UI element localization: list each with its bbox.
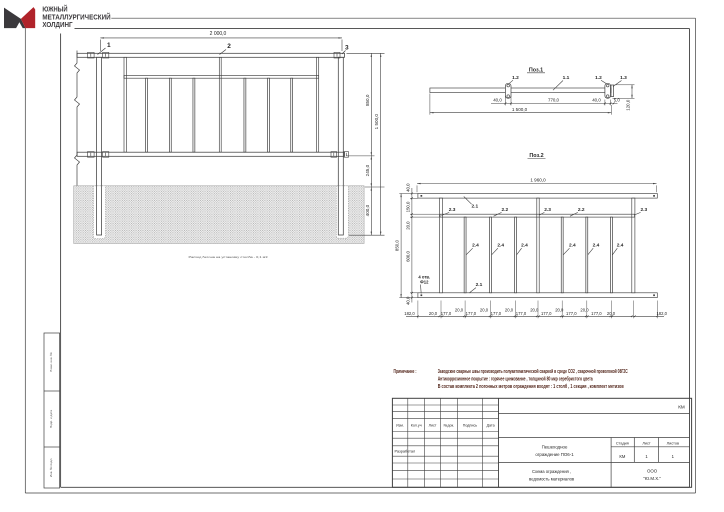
svg-text:Подп. и дата: Подп. и дата — [49, 410, 53, 429]
svg-text:Пешеходное: Пешеходное — [542, 445, 568, 450]
svg-text:20,0: 20,0 — [555, 307, 564, 312]
svg-text:Инв. № подл.: Инв. № подл. — [49, 458, 53, 477]
svg-text:2.3: 2.3 — [449, 207, 456, 213]
svg-text:177,0: 177,0 — [566, 311, 577, 316]
svg-text:1.3: 1.3 — [620, 75, 627, 81]
svg-text:В состав комплекта 2 погонных: В состав комплекта 2 погонных метров огр… — [438, 383, 624, 390]
svg-text:2 000,0: 2 000,0 — [210, 31, 227, 37]
svg-text:ограждение ПО6-1: ограждение ПО6-1 — [535, 452, 574, 457]
svg-text:600,0: 600,0 — [405, 251, 410, 262]
svg-text:КМ: КМ — [619, 454, 625, 459]
svg-text:245,0: 245,0 — [365, 164, 370, 176]
svg-text:2.3: 2.3 — [640, 207, 647, 213]
svg-text:Примечание :: Примечание : — [394, 369, 417, 375]
svg-text:ведомость материалов: ведомость материалов — [529, 477, 575, 482]
svg-text:2.2: 2.2 — [578, 207, 585, 213]
svg-text:40,0: 40,0 — [405, 183, 410, 192]
svg-text:КМ: КМ — [678, 405, 685, 410]
svg-text:Схема ограждения ,: Схема ограждения , — [532, 469, 571, 474]
svg-text:177,0: 177,0 — [441, 311, 452, 316]
svg-text:2.4: 2.4 — [521, 243, 528, 249]
svg-text:Дата: Дата — [487, 424, 495, 428]
svg-text:2.3: 2.3 — [544, 207, 551, 213]
svg-text:Стадия: Стадия — [616, 442, 629, 446]
svg-text:2.4: 2.4 — [472, 243, 479, 249]
svg-text:20,0: 20,0 — [607, 311, 616, 316]
svg-text:Антикоррозионное покрытие : го: Антикоррозионное покрытие : горячее цинк… — [438, 376, 593, 383]
svg-text:20,0: 20,0 — [405, 221, 410, 230]
svg-text:20,0: 20,0 — [530, 307, 539, 312]
svg-text:400,0: 400,0 — [365, 204, 370, 216]
svg-text:150,0: 150,0 — [405, 201, 410, 212]
svg-text:Подпись: Подпись — [463, 424, 477, 428]
svg-text:ХОЛДИНГ: ХОЛДИНГ — [42, 22, 72, 30]
svg-text:Лист: Лист — [429, 424, 437, 428]
svg-text:1.1: 1.1 — [563, 75, 570, 81]
svg-text:20,0: 20,0 — [580, 307, 589, 312]
svg-text:850,0: 850,0 — [395, 240, 400, 252]
svg-text:Разработал: Разработал — [395, 449, 416, 453]
svg-text:120,0: 120,0 — [626, 99, 631, 111]
svg-text:2.1: 2.1 — [471, 204, 478, 210]
svg-text:850,0: 850,0 — [365, 94, 370, 106]
svg-text:Взам. инв. №: Взам. инв. № — [49, 352, 53, 372]
svg-text:40,0: 40,0 — [592, 98, 601, 103]
svg-text:2.4: 2.4 — [593, 243, 600, 249]
svg-text:2.4: 2.4 — [569, 243, 576, 249]
svg-text:177,0: 177,0 — [491, 311, 502, 316]
svg-text:Расход бетона на установку сто: Расход бетона на установку столба - 0,1 … — [189, 255, 268, 259]
svg-text:1: 1 — [107, 42, 111, 49]
svg-text:Изм.: Изм. — [396, 424, 404, 428]
svg-text:ЮЖНЫЙ: ЮЖНЫЙ — [42, 4, 67, 14]
svg-text:Ф12: Ф12 — [420, 279, 429, 284]
svg-text:Кол.уч: Кол.уч — [411, 424, 422, 428]
svg-text:1 500,0: 1 500,0 — [374, 114, 379, 130]
svg-text:"Ю.М.Х.": "Ю.М.Х." — [643, 476, 661, 481]
svg-text:2.2: 2.2 — [501, 207, 508, 213]
svg-text:Листов: Листов — [667, 442, 679, 446]
svg-text:2.4: 2.4 — [617, 243, 624, 249]
svg-text:МЕТАЛЛУРГИЧЕСКИЙ: МЕТАЛЛУРГИЧЕСКИЙ — [42, 12, 110, 22]
svg-text:177,0: 177,0 — [591, 311, 602, 316]
svg-text:2: 2 — [227, 43, 231, 50]
svg-text:182,0: 182,0 — [656, 311, 667, 316]
svg-text:2.4: 2.4 — [497, 243, 504, 249]
svg-text:1 960,0: 1 960,0 — [530, 178, 546, 183]
svg-text:20,0: 20,0 — [480, 307, 489, 312]
svg-text:177,0: 177,0 — [466, 311, 477, 316]
svg-text:177,0: 177,0 — [541, 311, 552, 316]
svg-text:770,0: 770,0 — [548, 98, 560, 103]
svg-text:№док.: №док. — [444, 424, 455, 428]
svg-text:177,0: 177,0 — [516, 311, 527, 316]
svg-text:40,0: 40,0 — [493, 98, 502, 103]
svg-text:20,0: 20,0 — [429, 311, 438, 316]
svg-text:20,0: 20,0 — [455, 307, 464, 312]
svg-text:20,0: 20,0 — [505, 307, 514, 312]
svg-text:ООО: ООО — [647, 468, 658, 473]
svg-text:1.2: 1.2 — [512, 75, 519, 81]
svg-text:182,0: 182,0 — [404, 311, 415, 316]
svg-text:Лист: Лист — [642, 442, 651, 446]
svg-text:2.1: 2.1 — [476, 282, 483, 288]
svg-text:3: 3 — [345, 45, 349, 52]
svg-text:Заводские сварные швы производ: Заводские сварные швы производить полуав… — [438, 368, 628, 375]
svg-text:1 500,0: 1 500,0 — [512, 107, 528, 112]
